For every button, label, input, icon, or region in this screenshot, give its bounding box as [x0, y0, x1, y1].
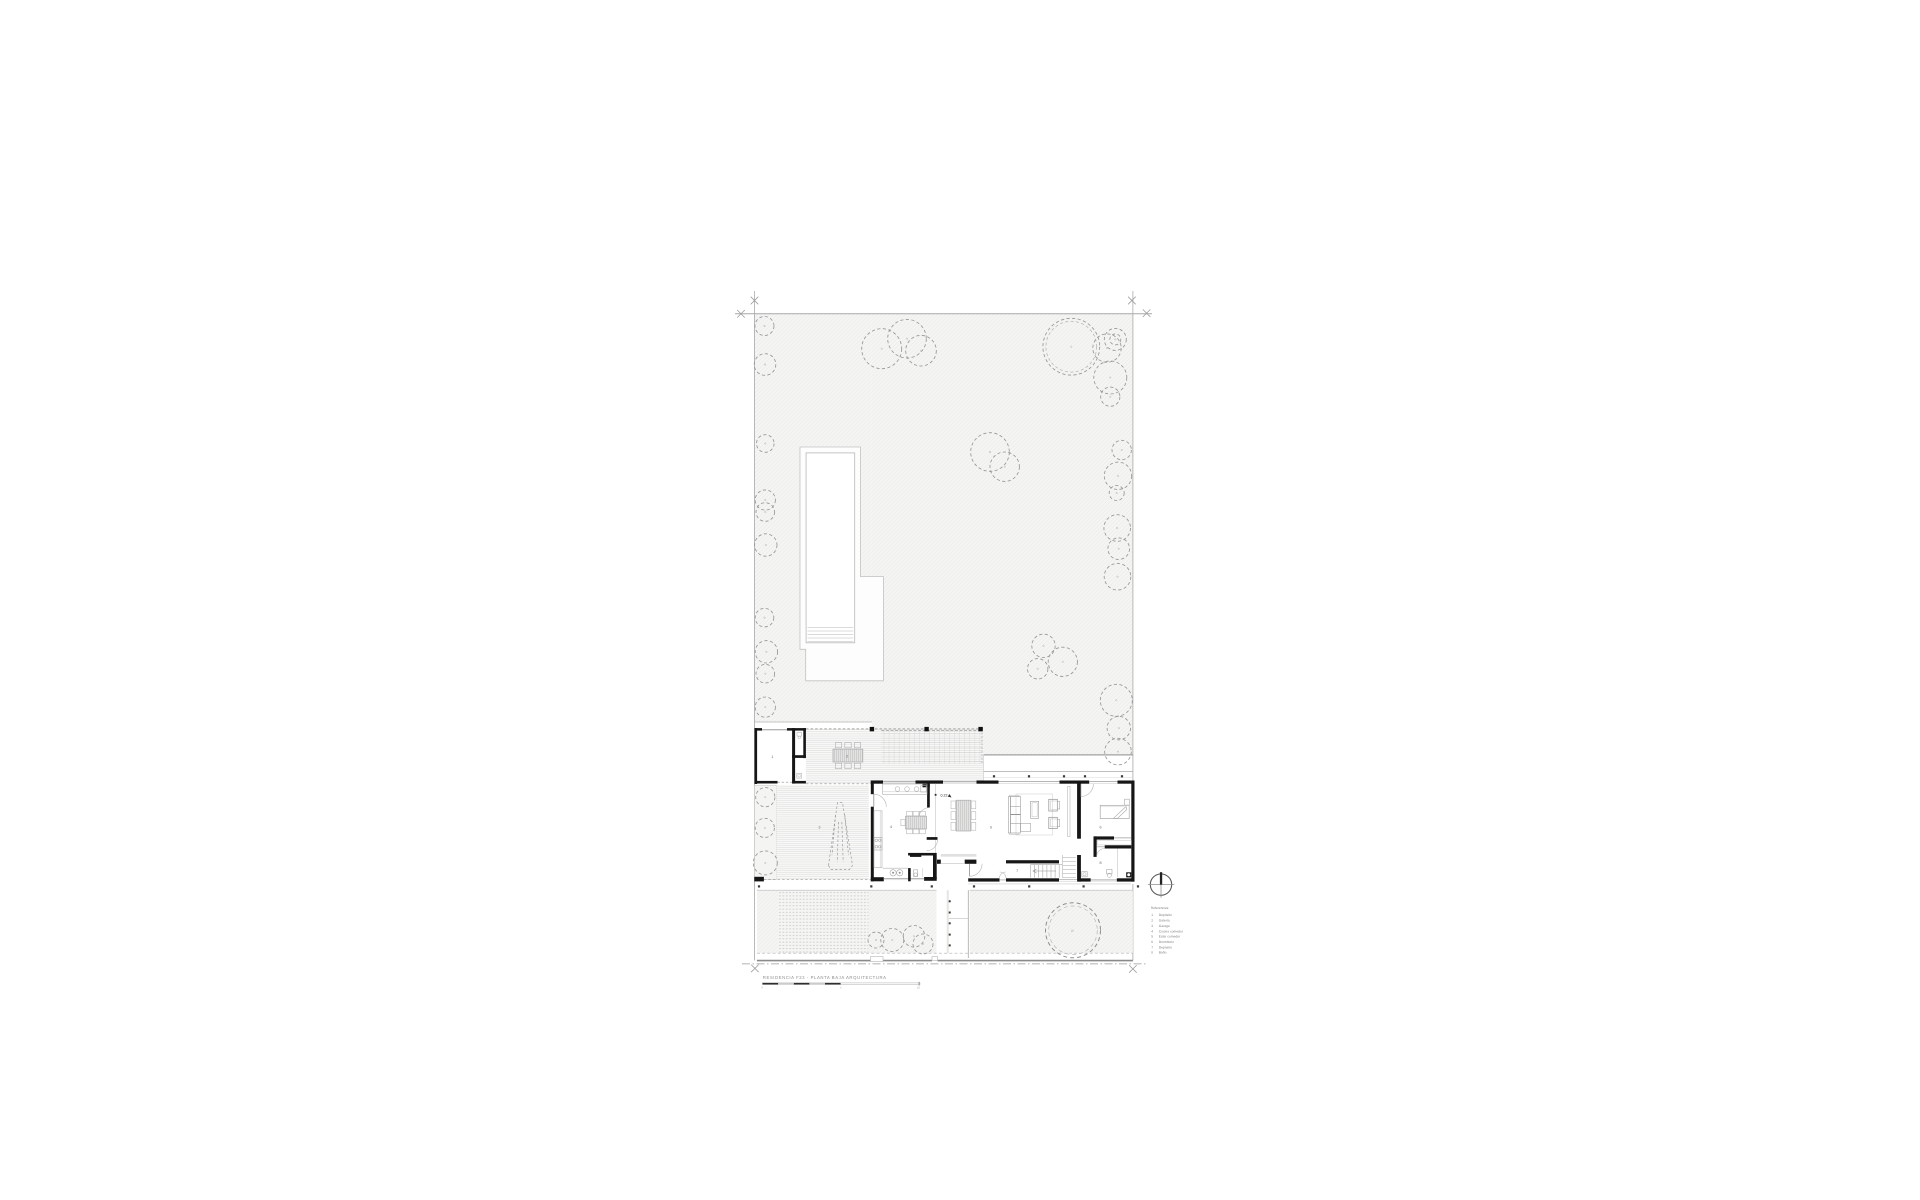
- svg-text:Depósito: Depósito: [1159, 913, 1172, 917]
- svg-text:1: 1: [771, 755, 773, 759]
- svg-text:8: 8: [1151, 951, 1153, 955]
- svg-text:Ø: Ø: [1071, 929, 1074, 933]
- svg-text:5: 5: [990, 826, 992, 830]
- svg-text:6: 6: [1099, 825, 1101, 829]
- svg-text:3: 3: [818, 826, 820, 830]
- svg-text:8: 8: [1099, 861, 1101, 865]
- svg-text:Garage: Garage: [1159, 924, 1170, 928]
- svg-text:RESIDENCIA F23 - PLANTA BAJA A: RESIDENCIA F23 - PLANTA BAJA ARQUITECTUR…: [763, 975, 887, 980]
- svg-text:6: 6: [1151, 940, 1153, 944]
- svg-text:7: 7: [1016, 869, 1018, 873]
- svg-text:Referencias: Referencias: [1151, 906, 1169, 910]
- svg-text:4: 4: [1151, 929, 1153, 933]
- svg-text:4: 4: [890, 825, 892, 829]
- svg-text:Estar comedor: Estar comedor: [1159, 935, 1181, 939]
- svg-text:Dormitorio: Dormitorio: [1159, 940, 1174, 944]
- svg-text:Galería: Galería: [1159, 919, 1170, 923]
- svg-text:3: 3: [1151, 924, 1153, 928]
- svg-text:0.22: 0.22: [941, 793, 948, 797]
- svg-text:2: 2: [1151, 919, 1153, 923]
- svg-text:2: 2: [846, 755, 848, 759]
- svg-text:Baño: Baño: [1159, 951, 1167, 955]
- svg-text:7: 7: [1151, 945, 1153, 949]
- svg-text:5: 5: [1151, 935, 1153, 939]
- svg-text:Depósito: Depósito: [1159, 945, 1172, 949]
- svg-text:1: 1: [1151, 913, 1153, 917]
- svg-text:Cocina comedor: Cocina comedor: [1159, 929, 1184, 933]
